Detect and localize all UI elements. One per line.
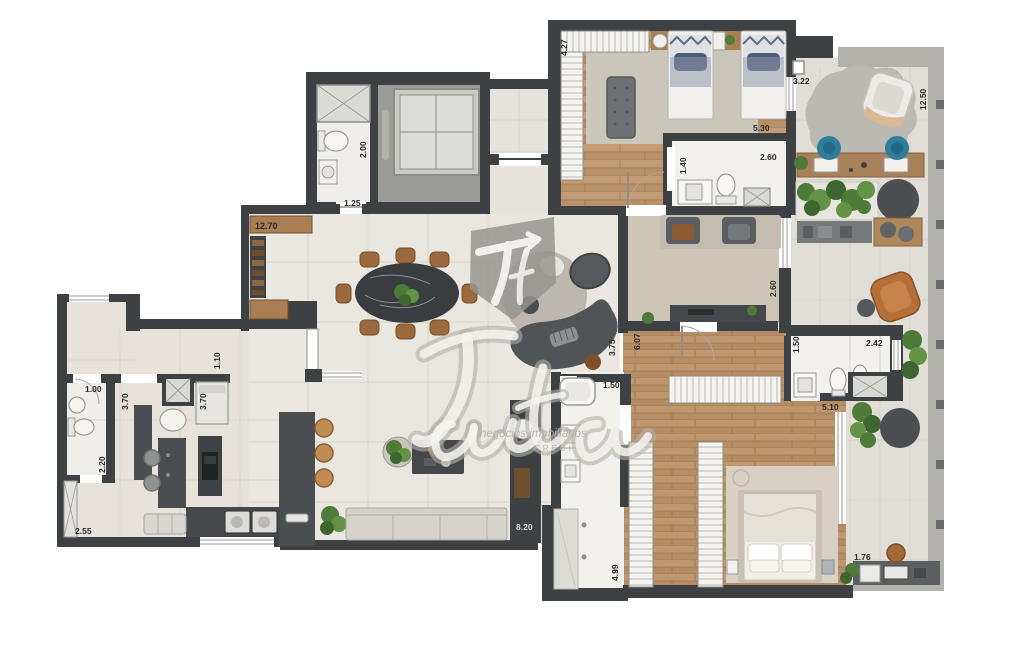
svg-text:3.22: 3.22 xyxy=(793,76,810,86)
svg-text:1.50: 1.50 xyxy=(791,336,801,353)
svg-text:3.75: 3.75 xyxy=(607,339,617,356)
svg-text:1.50: 1.50 xyxy=(603,380,620,390)
svg-text:12.50: 12.50 xyxy=(918,88,928,110)
svg-text:2.60: 2.60 xyxy=(760,152,777,162)
svg-text:1.25: 1.25 xyxy=(344,198,361,208)
svg-text:12.70: 12.70 xyxy=(255,221,278,231)
svg-text:6.07: 6.07 xyxy=(632,333,642,350)
svg-text:1.10: 1.10 xyxy=(212,352,222,369)
svg-text:4.27: 4.27 xyxy=(559,39,569,56)
svg-text:CRECI: CRECI xyxy=(534,444,574,453)
svg-text:5.10: 5.10 xyxy=(822,402,839,412)
svg-text:2.42: 2.42 xyxy=(866,338,883,348)
svg-text:4.99: 4.99 xyxy=(610,564,620,581)
svg-text:2.20: 2.20 xyxy=(97,456,107,473)
svg-text:3.70: 3.70 xyxy=(120,393,130,410)
svg-text:1.00: 1.00 xyxy=(85,384,102,394)
svg-text:negócios imobiliários: negócios imobiliários xyxy=(480,428,587,440)
svg-text:2.55: 2.55 xyxy=(75,526,92,536)
svg-text:1.40: 1.40 xyxy=(678,157,688,174)
svg-text:1.76: 1.76 xyxy=(854,552,871,562)
svg-text:5.30: 5.30 xyxy=(753,123,770,133)
svg-text:2.60: 2.60 xyxy=(768,280,778,297)
svg-text:3.70: 3.70 xyxy=(198,393,208,410)
svg-text:8.20: 8.20 xyxy=(516,522,533,532)
svg-text:2.00: 2.00 xyxy=(358,141,368,158)
